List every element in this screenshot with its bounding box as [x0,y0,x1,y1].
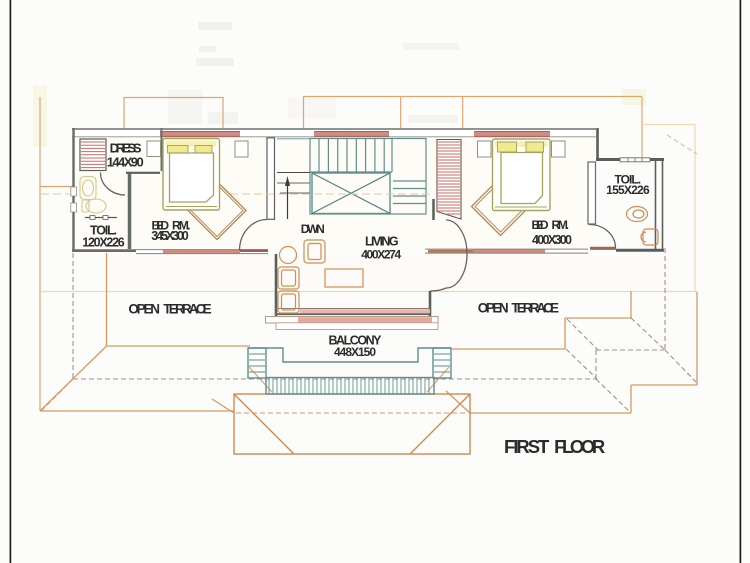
svg-text:345X300: 345X300 [151,229,189,243]
svg-text:FIRST: FIRST [504,436,550,457]
svg-text:LIVING: LIVING [365,234,399,248]
svg-text:400X300: 400X300 [532,233,572,247]
svg-text:144X90: 144X90 [107,155,144,170]
svg-text:TERRACE: TERRACE [163,302,211,317]
svg-text:155X226: 155X226 [606,183,650,197]
svg-text:400X274: 400X274 [361,248,401,262]
svg-text:FLOOR: FLOOR [554,436,605,457]
svg-text:DWN: DWN [301,222,325,236]
svg-text:120X226: 120X226 [82,236,125,250]
svg-text:OPEN: OPEN [478,301,509,316]
svg-text:TERRACE: TERRACE [511,301,559,316]
svg-text:BED: BED [532,218,549,232]
svg-text:OPEN: OPEN [128,302,160,317]
svg-text:448X150: 448X150 [334,345,376,359]
svg-text:DRESS: DRESS [110,140,142,155]
svg-text:RM.: RM. [551,218,569,232]
